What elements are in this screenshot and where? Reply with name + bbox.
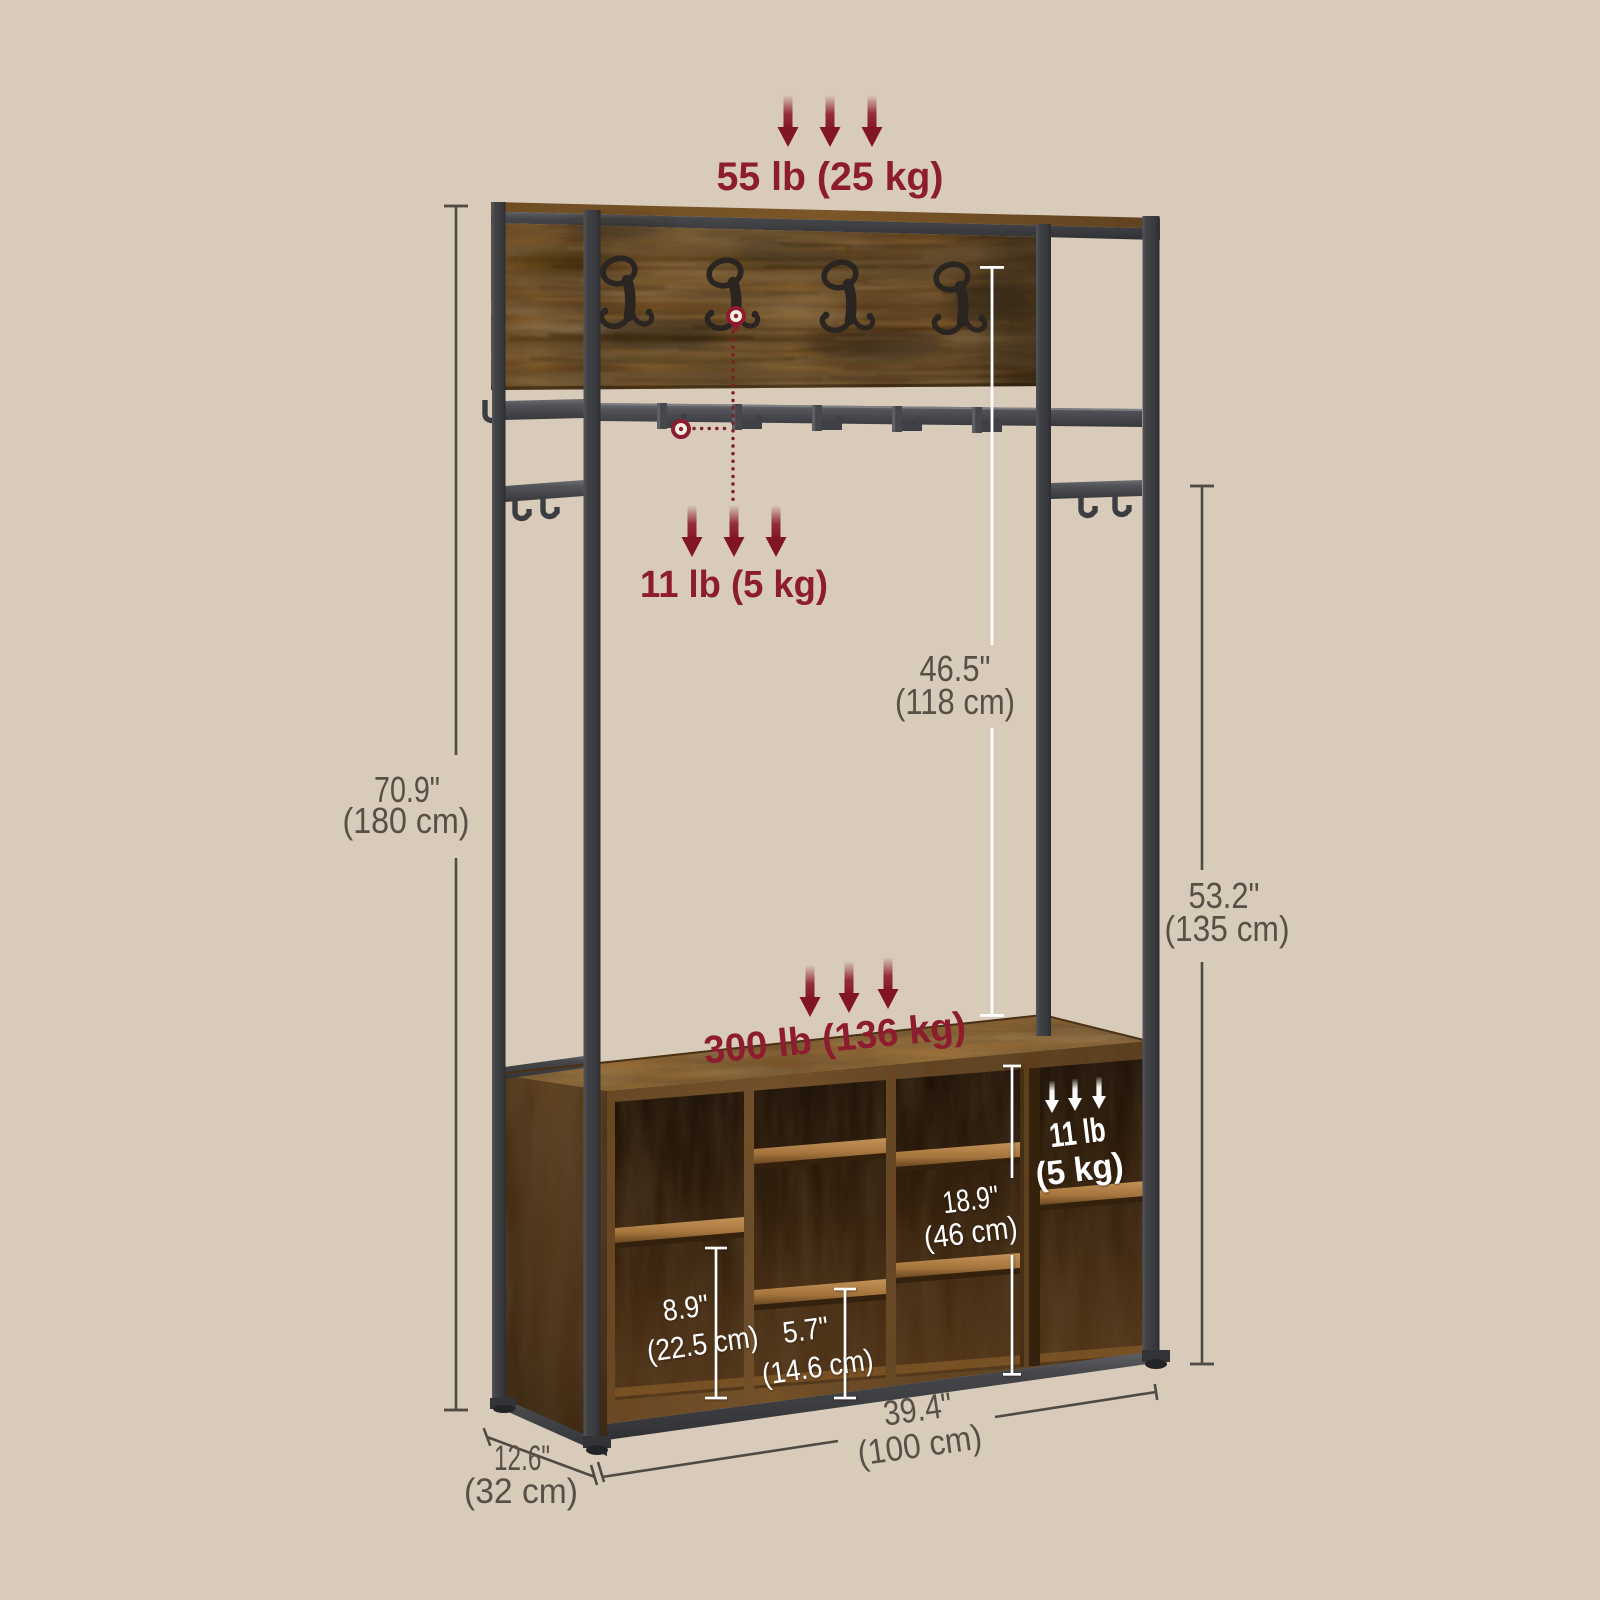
svg-text:(118 cm): (118 cm): [895, 681, 1015, 722]
svg-text:(32 cm): (32 cm): [464, 1472, 578, 1511]
svg-text:11 lb (5 kg): 11 lb (5 kg): [640, 564, 828, 606]
svg-text:(180 cm): (180 cm): [343, 800, 470, 841]
svg-text:55 lb (25 kg): 55 lb (25 kg): [717, 155, 944, 199]
svg-text:5.7": 5.7": [781, 1311, 831, 1350]
svg-text:(135 cm): (135 cm): [1165, 908, 1290, 949]
svg-text:8.9": 8.9": [661, 1289, 711, 1328]
